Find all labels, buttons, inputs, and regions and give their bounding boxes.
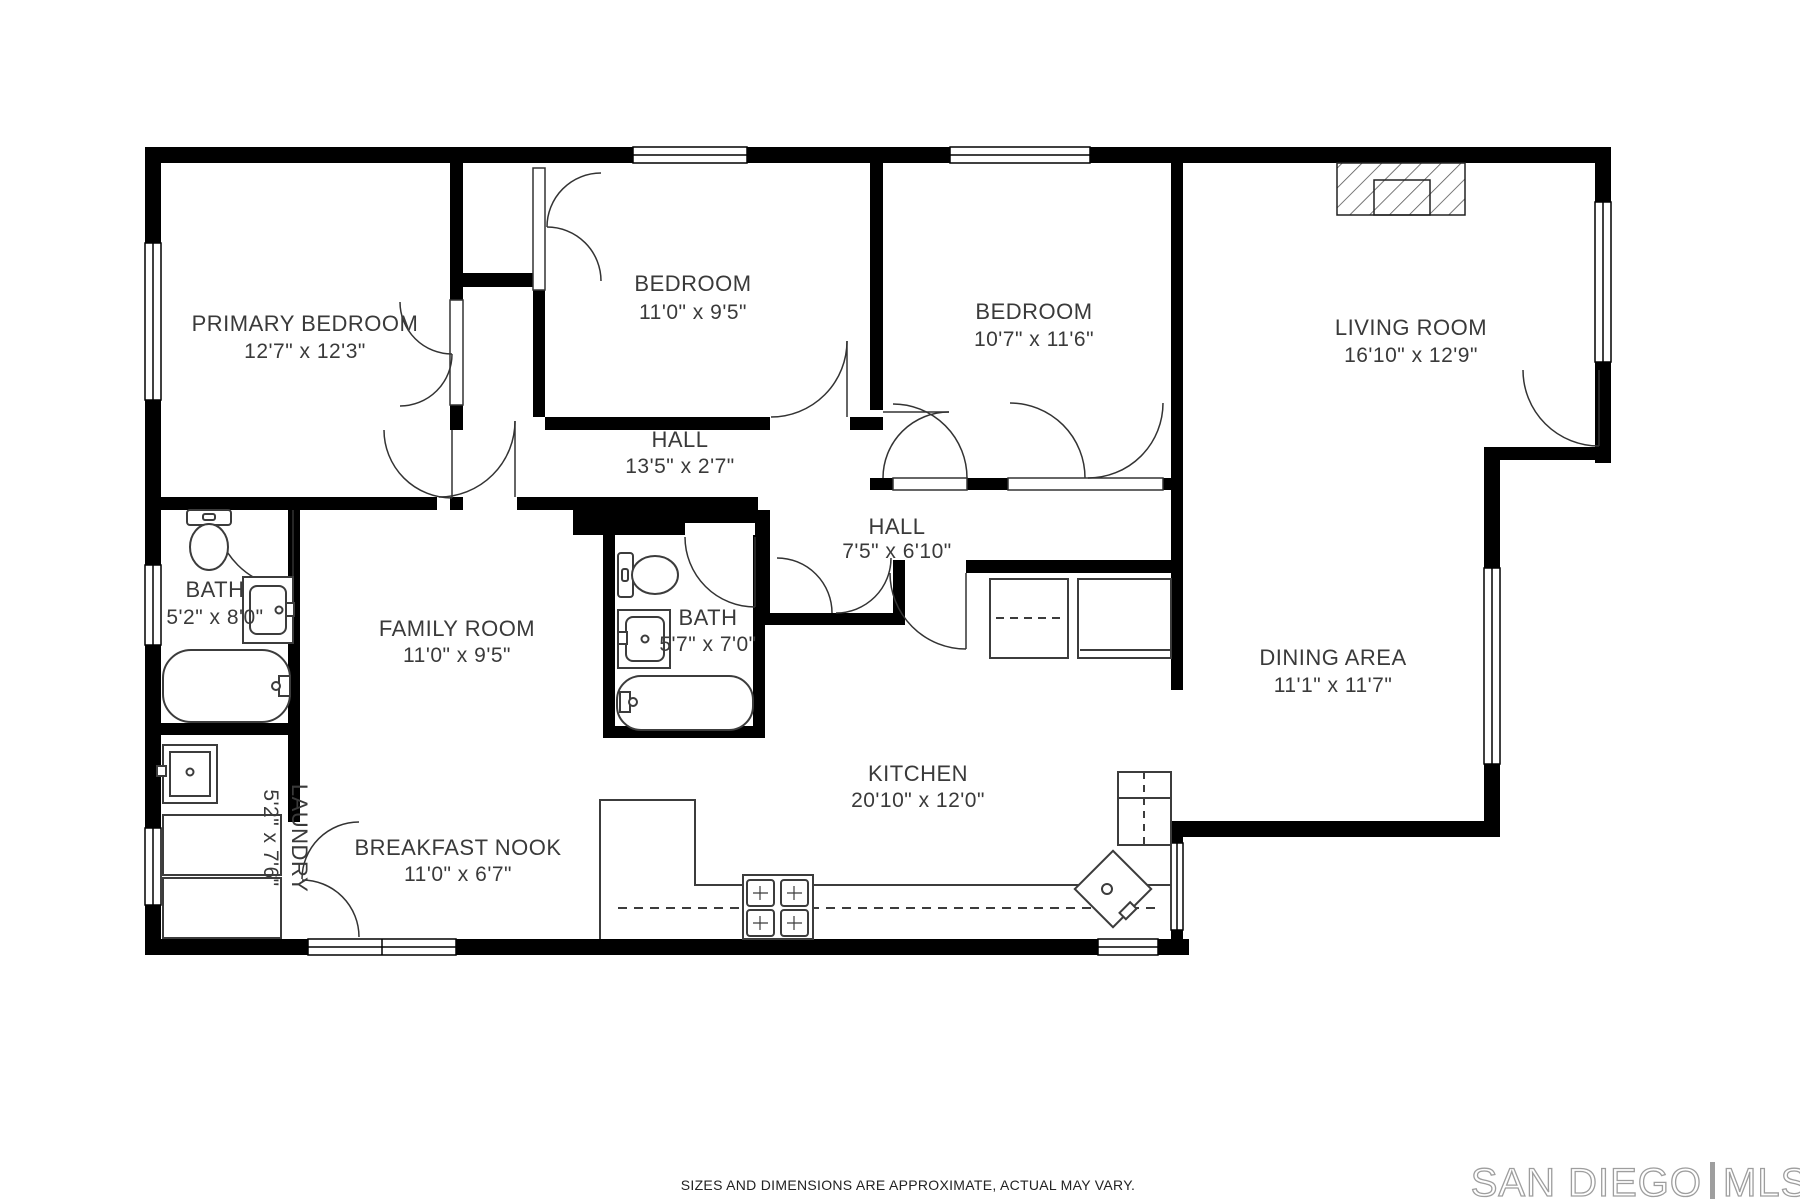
wall-exterior-top — [145, 147, 1611, 163]
mls-logo: SAN DIEGO MLS — [1471, 1161, 1800, 1200]
refrigerator — [1118, 772, 1171, 845]
window-primary-left — [145, 243, 161, 400]
room-label-family-room: FAMILY ROOM — [379, 616, 535, 641]
room-dims-bedroom-2: 10'7" x 11'6" — [974, 328, 1094, 351]
room-dims-primary-bedroom: 12'7" x 12'3" — [244, 340, 366, 363]
mls-logo-right: MLS — [1723, 1161, 1800, 1200]
door-primary-entry — [384, 430, 452, 498]
floor-plan-page: PRIMARY BEDROOM 12'7" x 12'3" BEDROOM 11… — [0, 0, 1800, 1200]
window-dining-right — [1484, 568, 1500, 764]
door-hall-closet — [777, 558, 891, 613]
wall-kitchen-right-b — [1171, 930, 1183, 955]
pantry-cabinet — [990, 579, 1171, 658]
room-label-living-room: LIVING ROOM — [1335, 315, 1487, 340]
room-label-primary-bedroom: PRIMARY BEDROOM — [192, 311, 419, 336]
sink-laundry — [157, 745, 217, 803]
door-family-room — [439, 421, 515, 497]
room-dims-kitchen: 20'10" x 12'0" — [851, 789, 985, 812]
door-bedroom2-closet-single — [893, 404, 967, 490]
room-label-laundry: LAUNDRY — [287, 784, 312, 892]
room-label-hall-1: HALL — [651, 427, 708, 452]
kitchen-counter — [600, 800, 1171, 939]
room-label-bath-2: BATH — [678, 605, 737, 630]
door-bedroom2-closet-double — [1008, 403, 1163, 490]
wall-exterior-step — [1490, 447, 1611, 460]
room-dims-bedroom-1: 11'0" x 9'5" — [639, 301, 747, 324]
room-dims-dining-area: 11'1" x 11'7" — [1274, 674, 1393, 697]
window-bath1-left — [145, 565, 161, 645]
room-dims-hall-1: 13'5" x 2'7" — [625, 455, 735, 478]
window-kitchen-bottom — [1098, 939, 1158, 955]
window-laundry-left — [145, 828, 161, 905]
tub-bath1 — [163, 650, 290, 722]
room-labels: PRIMARY BEDROOM 12'7" x 12'3" BEDROOM 11… — [166, 271, 1487, 892]
mls-logo-left: SAN DIEGO — [1471, 1161, 1702, 1200]
mls-logo-separator — [1710, 1162, 1715, 1199]
wall-dining-bottom — [1171, 821, 1497, 837]
window-bedroom2-top — [950, 147, 1090, 163]
room-dims-hall-2: 7'5" x 6'10" — [842, 540, 952, 563]
room-dims-laundry: 5'2" x 7'6" — [259, 789, 282, 886]
room-dims-breakfast-nook: 11'0" x 6'7" — [404, 863, 512, 886]
room-label-hall-2: HALL — [868, 514, 925, 539]
room-label-kitchen: KITCHEN — [868, 761, 968, 786]
room-label-bedroom-1: BEDROOM — [634, 271, 751, 296]
window-bedroom1-top — [633, 147, 747, 163]
slider-breakfast-nook — [308, 939, 456, 955]
wall-exterior-bottom — [145, 939, 1189, 955]
room-label-breakfast-nook: BREAKFAST NOOK — [354, 835, 561, 860]
stove — [743, 875, 813, 939]
door-bedroom2-entry — [883, 412, 949, 478]
window-living-right — [1595, 202, 1611, 362]
tub-bath2 — [617, 676, 753, 730]
room-label-bedroom-2: BEDROOM — [975, 299, 1092, 324]
wall-kitchen-right-a — [1171, 821, 1183, 843]
kitchen-corner-sink — [1075, 851, 1151, 927]
fireplace — [1337, 163, 1465, 215]
door-bedroom1-entry — [771, 341, 847, 417]
door-living-room — [1523, 370, 1599, 446]
door-bedroom1-closet — [533, 168, 601, 290]
room-dims-bath-2: 5'7" x 7'0" — [659, 633, 756, 656]
toilet-bath1 — [187, 510, 231, 570]
floor-plan-drawing: PRIMARY BEDROOM 12'7" x 12'3" BEDROOM 11… — [0, 0, 1800, 1200]
door-bath2 — [685, 537, 755, 607]
room-dims-living-room: 16'10" x 12'9" — [1344, 344, 1478, 367]
room-dims-bath-1: 5'2" x 8'0" — [166, 606, 263, 629]
room-dims-family-room: 11'0" x 9'5" — [403, 644, 511, 667]
window-kitchen-dining — [1171, 843, 1183, 930]
room-label-bath-1: BATH — [185, 577, 244, 602]
toilet-bath2 — [618, 553, 678, 597]
room-label-dining-area: DINING AREA — [1259, 645, 1406, 670]
disclaimer-text: SIZES AND DIMENSIONS ARE APPROXIMATE, AC… — [681, 1177, 1135, 1193]
